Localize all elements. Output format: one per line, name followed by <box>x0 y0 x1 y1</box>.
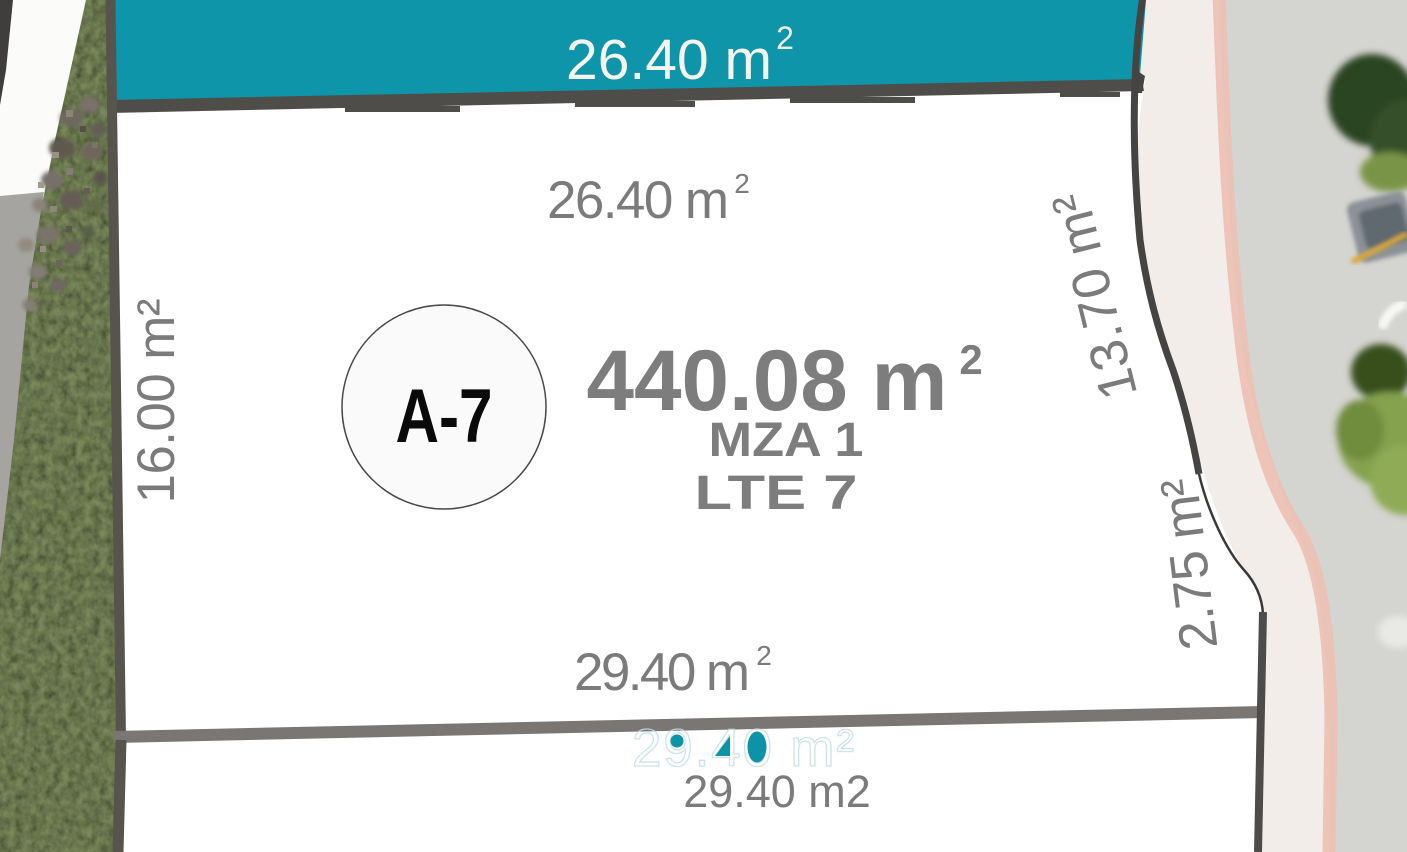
svg-text:2: 2 <box>734 168 750 199</box>
svg-text:A-7: A-7 <box>396 374 493 459</box>
svg-text:26.40 m: 26.40 m <box>547 171 729 230</box>
svg-text:LTE 7: LTE 7 <box>695 467 858 520</box>
svg-text:16.00 m²: 16.00 m² <box>127 299 186 504</box>
svg-text:29.40 m2: 29.40 m2 <box>683 766 871 817</box>
svg-text:26.40 m: 26.40 m <box>566 28 772 92</box>
svg-text:2: 2 <box>959 336 982 383</box>
svg-text:MZA 1: MZA 1 <box>709 414 864 467</box>
svg-text:29.40 m: 29.40 m <box>574 643 750 702</box>
svg-text:2: 2 <box>756 640 772 671</box>
svg-text:2: 2 <box>776 20 794 56</box>
